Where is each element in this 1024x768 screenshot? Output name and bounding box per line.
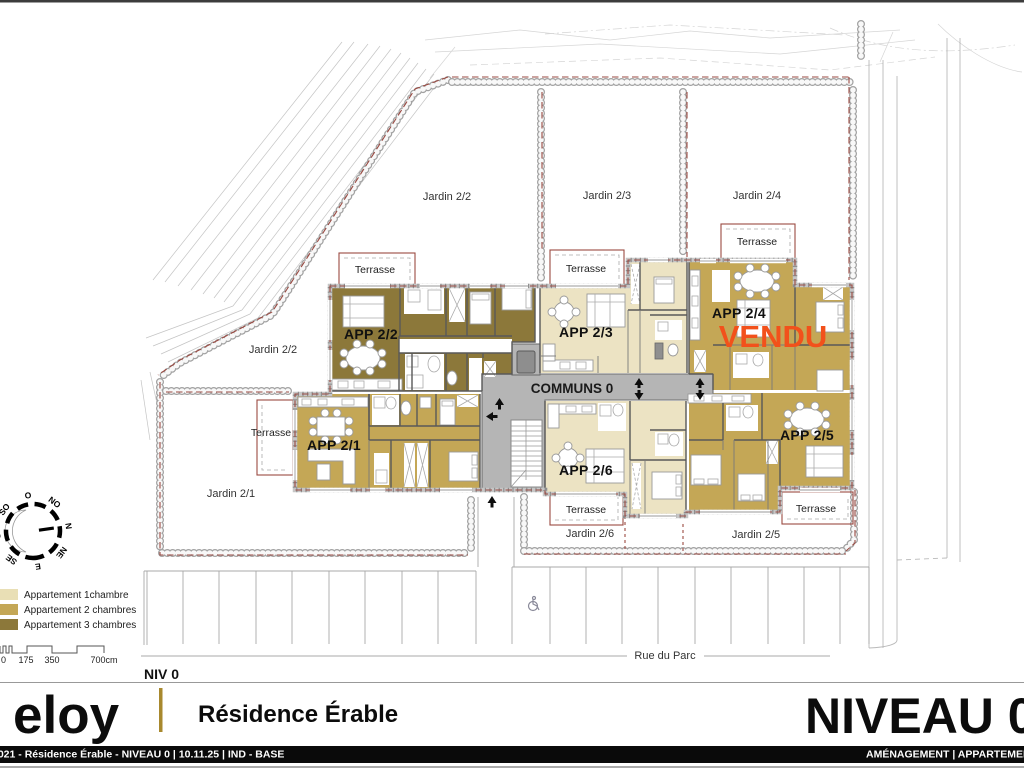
svg-text:APP 2/6: APP 2/6 xyxy=(559,462,613,478)
svg-text:0: 0 xyxy=(1,655,6,665)
svg-text:Terrasse: Terrasse xyxy=(796,503,836,515)
svg-text:Appartement 3 chambres: Appartement 3 chambres xyxy=(24,620,136,631)
svg-text:NIV 0: NIV 0 xyxy=(144,666,179,682)
svg-text:APP 2/3: APP 2/3 xyxy=(559,324,613,340)
svg-text:NIVEAU 0: NIVEAU 0 xyxy=(805,688,1024,744)
svg-text:VENDU: VENDU xyxy=(719,319,828,354)
svg-text:Jardin 2/2: Jardin 2/2 xyxy=(249,344,297,356)
svg-text:Appartement 2 chambres: Appartement 2 chambres xyxy=(24,605,136,616)
svg-text:Appartement 1chambre: Appartement 1chambre xyxy=(24,590,129,601)
svg-text:eloy: eloy xyxy=(13,686,120,745)
svg-text:Jardin 2/5: Jardin 2/5 xyxy=(732,529,780,541)
svg-text:Jardin 2/4: Jardin 2/4 xyxy=(733,190,781,202)
svg-text:Rue du Parc: Rue du Parc xyxy=(634,650,696,662)
svg-text:175: 175 xyxy=(18,655,33,665)
svg-text:Terrasse: Terrasse xyxy=(566,504,606,516)
svg-text:COMMUNS 0: COMMUNS 0 xyxy=(531,381,614,396)
svg-text:AMÉNAGEMENT | APPARTEMENTS: AMÉNAGEMENT | APPARTEMENTS xyxy=(866,748,1024,761)
svg-text:APP 2/5: APP 2/5 xyxy=(780,427,834,443)
svg-text:Jardin 2/3: Jardin 2/3 xyxy=(583,190,631,202)
svg-text:Jardin 2/6: Jardin 2/6 xyxy=(566,528,614,540)
svg-text:APP 2/2: APP 2/2 xyxy=(344,326,398,342)
svg-text:Terrasse: Terrasse xyxy=(737,236,777,248)
svg-text:3021 - Résidence Érable - NI: 3021 - Résidence Érable - NIVEAU 0 | 10.… xyxy=(0,748,284,761)
svg-text:Résidence Érable: Résidence Érable xyxy=(198,700,398,728)
svg-text:Terrasse: Terrasse xyxy=(355,264,395,276)
svg-text:700cm: 700cm xyxy=(90,655,117,665)
svg-text:Jardin 2/2: Jardin 2/2 xyxy=(423,191,471,203)
svg-text:Terrasse: Terrasse xyxy=(251,427,291,439)
svg-text:350: 350 xyxy=(44,655,59,665)
svg-text:Terrasse: Terrasse xyxy=(566,263,606,275)
svg-text:Jardin 2/1: Jardin 2/1 xyxy=(207,488,255,500)
svg-text:APP 2/1: APP 2/1 xyxy=(307,437,361,453)
